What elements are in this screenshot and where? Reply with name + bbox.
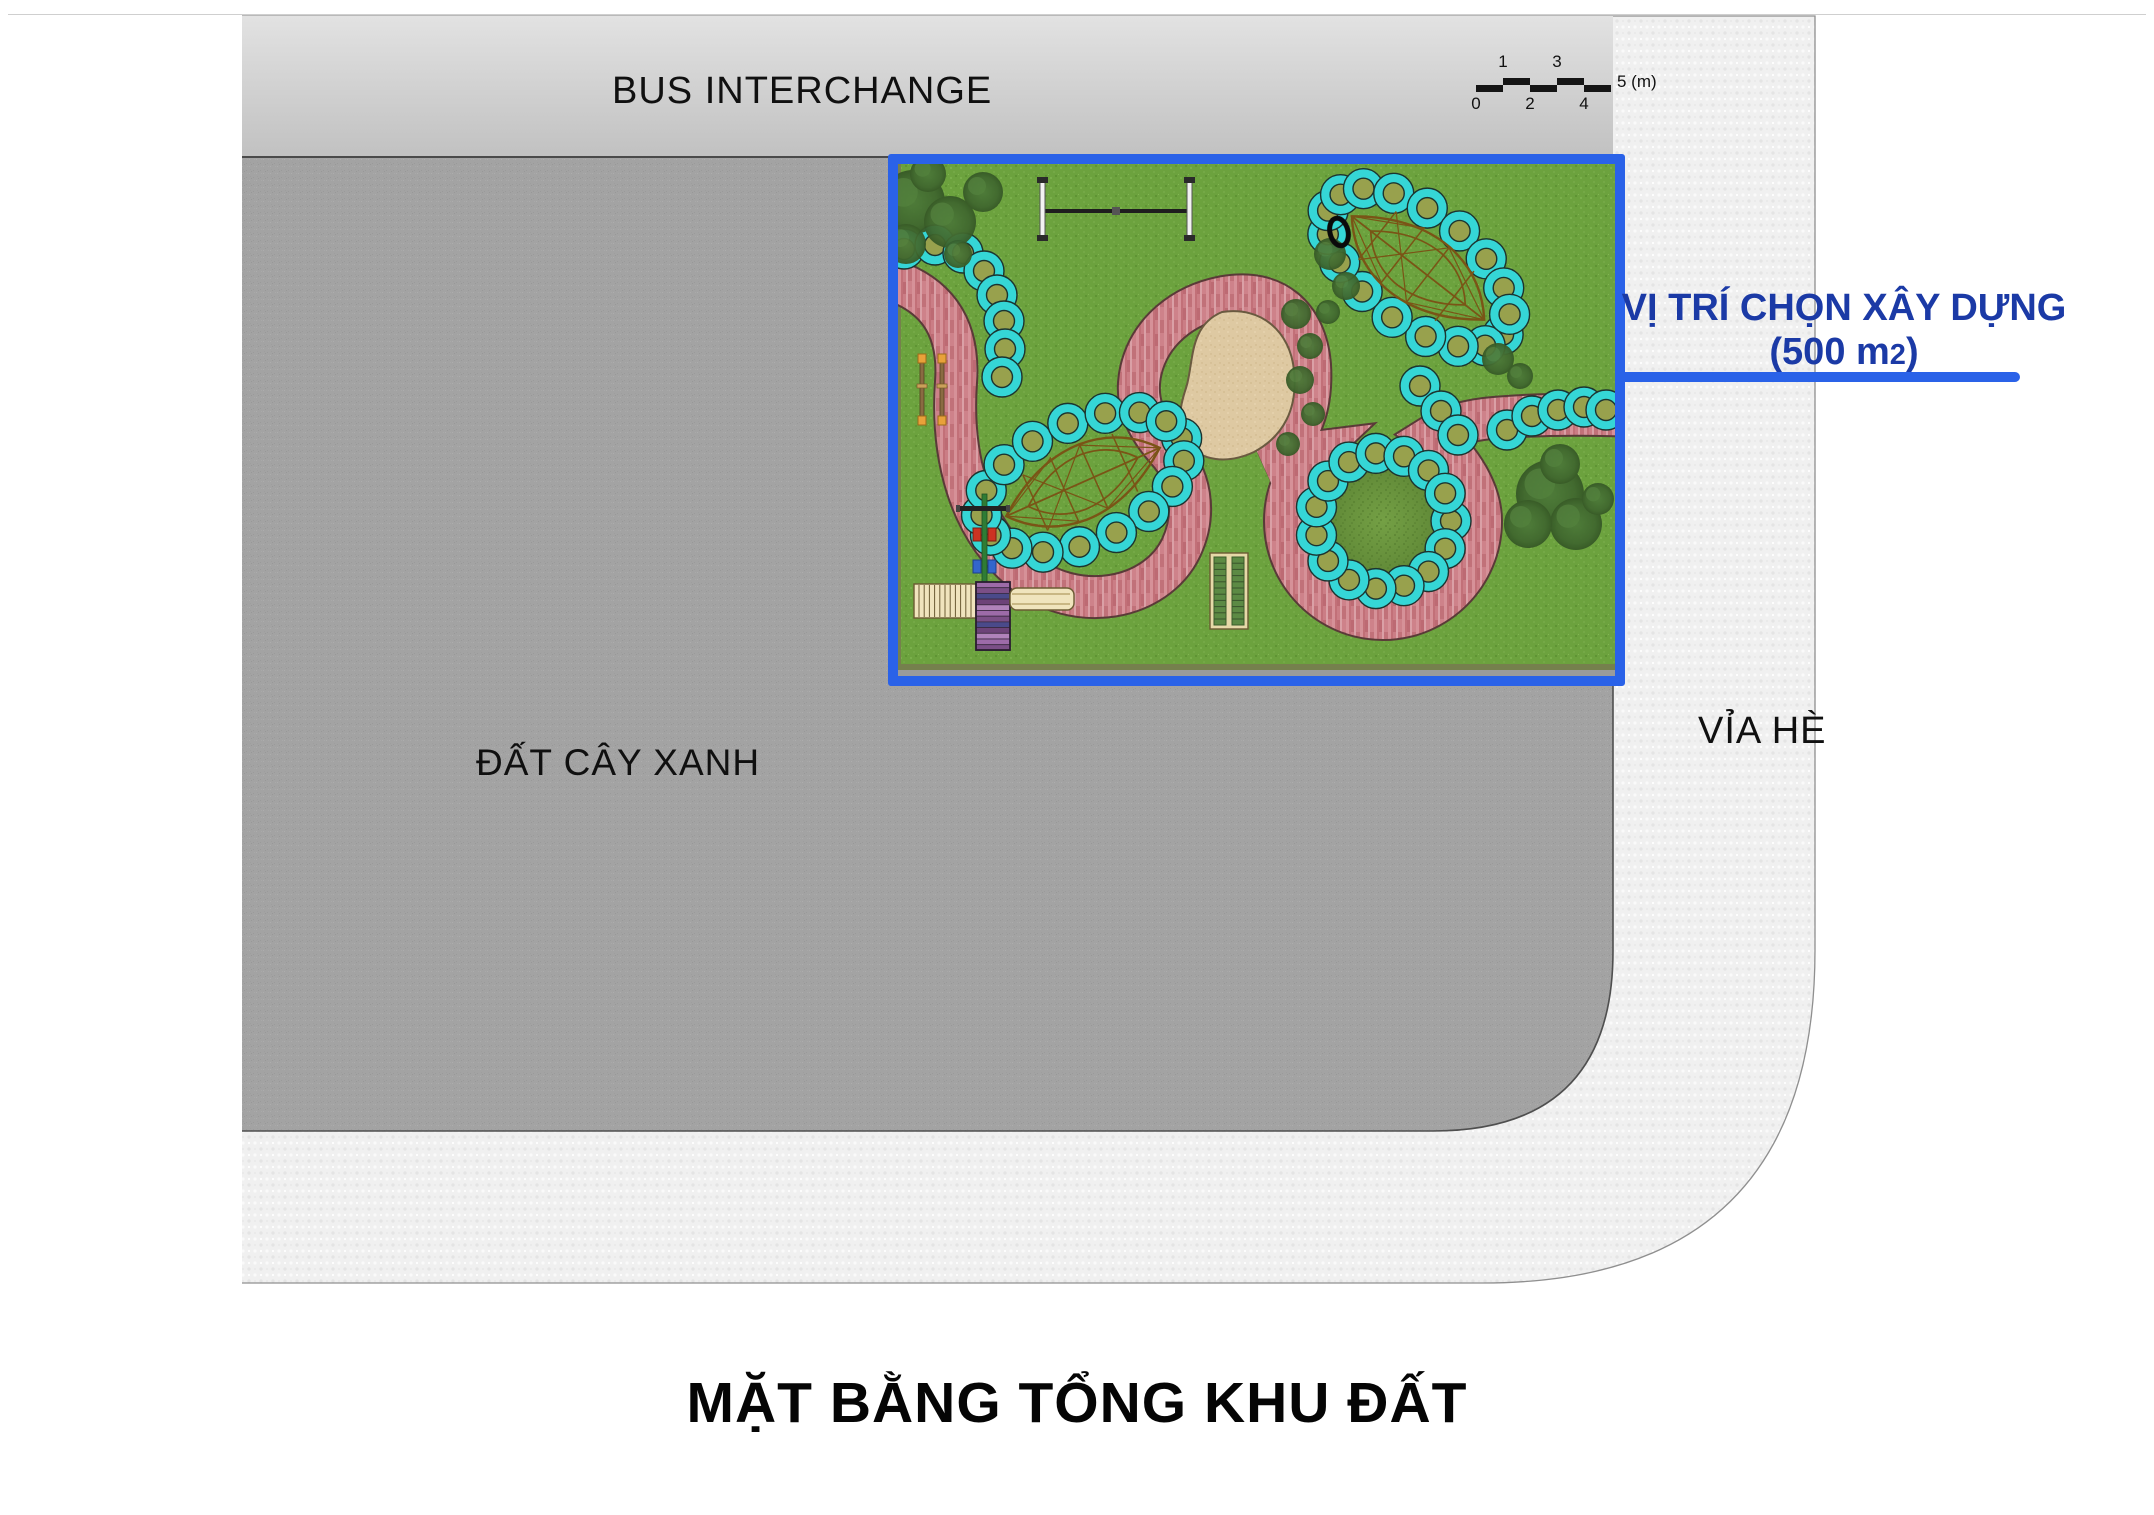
playground-plan-box [888, 154, 1625, 686]
page-title: MẶT BẰNG TỔNG KHU ĐẤT [0, 1370, 2154, 1436]
scale-tick-label: 3 [1549, 52, 1565, 72]
slide-top-border [8, 14, 2146, 15]
scale-bar: 1 3 0 2 4 5 (m) [1476, 52, 1686, 114]
callout-label: VỊ TRÍ CHỌN XÂY DỰNG (500 m2) [1618, 286, 2070, 374]
playground-svg [898, 164, 1615, 676]
site-plan-page: { "header": { "bus_interchange_label": "… [0, 0, 2154, 1515]
callout-leader-line [1622, 372, 2020, 382]
scale-bar-segment [1476, 85, 1503, 92]
scale-tick-label: 2 [1522, 94, 1538, 114]
scale-tick-label: 0 [1468, 94, 1484, 114]
bus-interchange-label: BUS INTERCHANGE [612, 70, 992, 113]
scale-bar-segment [1503, 78, 1530, 85]
bench [1210, 553, 1248, 629]
scale-bar-segment [1557, 78, 1584, 85]
callout-line2: (500 m2) [1618, 330, 2070, 374]
scale-bar-segment [1530, 85, 1557, 92]
callout-line1: VỊ TRÍ CHỌN XÂY DỰNG [1618, 286, 2070, 330]
sidewalk-label: VỈA HÈ [1698, 710, 1827, 753]
scale-tick-label: 4 [1576, 94, 1592, 114]
green-area-label: ĐẤT CÂY XANH [476, 742, 760, 784]
scale-tick-label: 1 [1495, 52, 1511, 72]
scale-end-label: 5 (m) [1617, 72, 1657, 92]
scale-bar-segment [1584, 85, 1611, 92]
